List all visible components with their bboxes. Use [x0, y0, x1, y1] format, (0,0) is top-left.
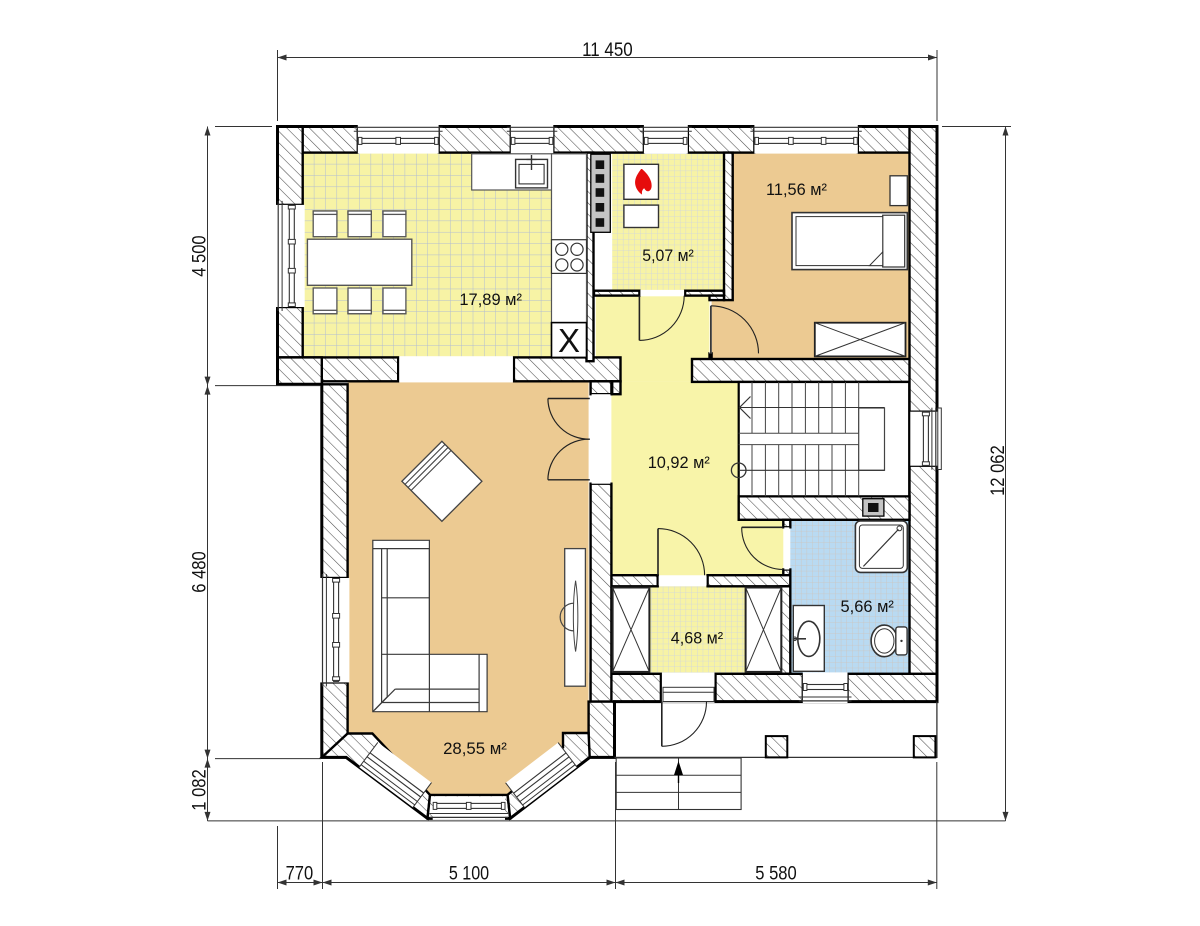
- svg-text:11,56 м²: 11,56 м²: [766, 181, 827, 199]
- svg-text:4,68 м²: 4,68 м²: [671, 630, 724, 648]
- svg-text:5 100: 5 100: [449, 863, 489, 885]
- svg-text:10,92 м²: 10,92 м²: [648, 454, 711, 472]
- svg-text:12 062: 12 062: [987, 445, 1009, 496]
- svg-text:11 450: 11 450: [582, 39, 633, 61]
- svg-text:X: X: [558, 322, 580, 359]
- svg-text:28,55 м²: 28,55 м²: [443, 740, 507, 758]
- svg-text:6 480: 6 480: [189, 551, 211, 593]
- svg-text:17,89 м²: 17,89 м²: [459, 291, 522, 309]
- svg-text:5,66 м²: 5,66 м²: [841, 598, 895, 616]
- svg-text:770: 770: [286, 863, 314, 885]
- svg-text:5,07 м²: 5,07 м²: [642, 247, 694, 265]
- svg-text:4 500: 4 500: [189, 235, 211, 277]
- svg-text:1 082: 1 082: [189, 769, 211, 810]
- svg-text:5 580: 5 580: [755, 863, 797, 885]
